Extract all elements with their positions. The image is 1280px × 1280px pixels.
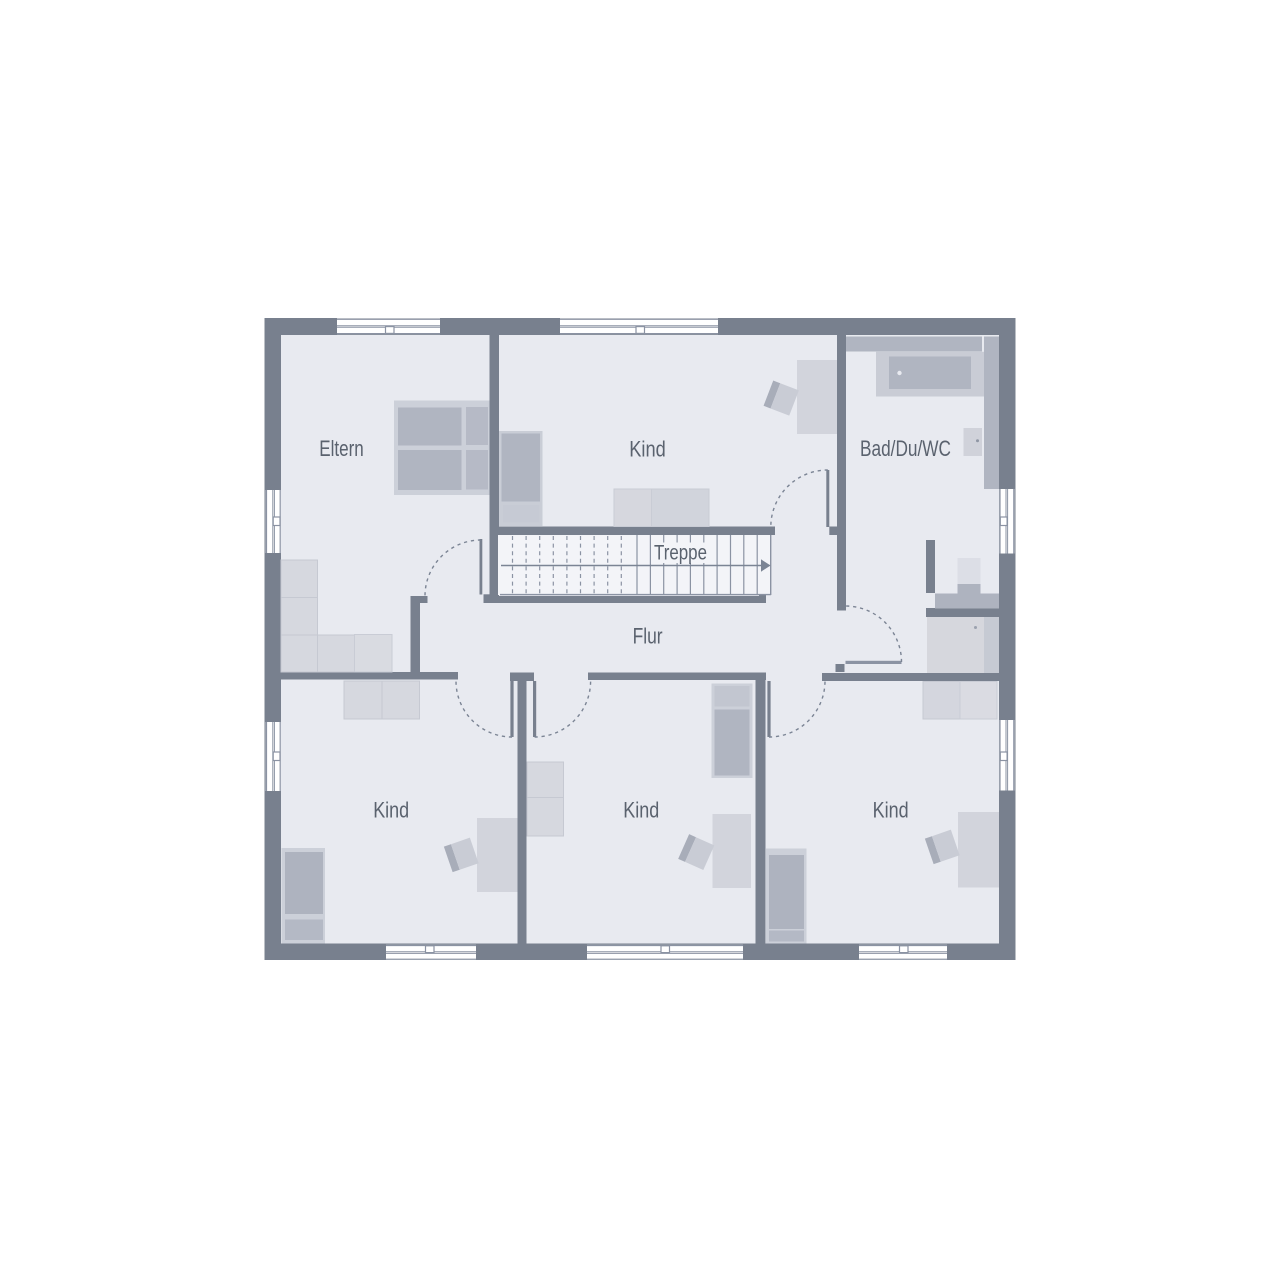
svg-text:Kind: Kind bbox=[873, 798, 909, 823]
svg-text:Flur: Flur bbox=[633, 624, 663, 649]
svg-text:Kind: Kind bbox=[629, 437, 666, 462]
svg-text:Kind: Kind bbox=[373, 798, 409, 823]
svg-text:Treppe: Treppe bbox=[654, 542, 707, 565]
svg-text:Bad/Du/WC: Bad/Du/WC bbox=[860, 436, 951, 461]
svg-text:Eltern: Eltern bbox=[319, 436, 364, 461]
svg-text:Kind: Kind bbox=[623, 798, 659, 823]
